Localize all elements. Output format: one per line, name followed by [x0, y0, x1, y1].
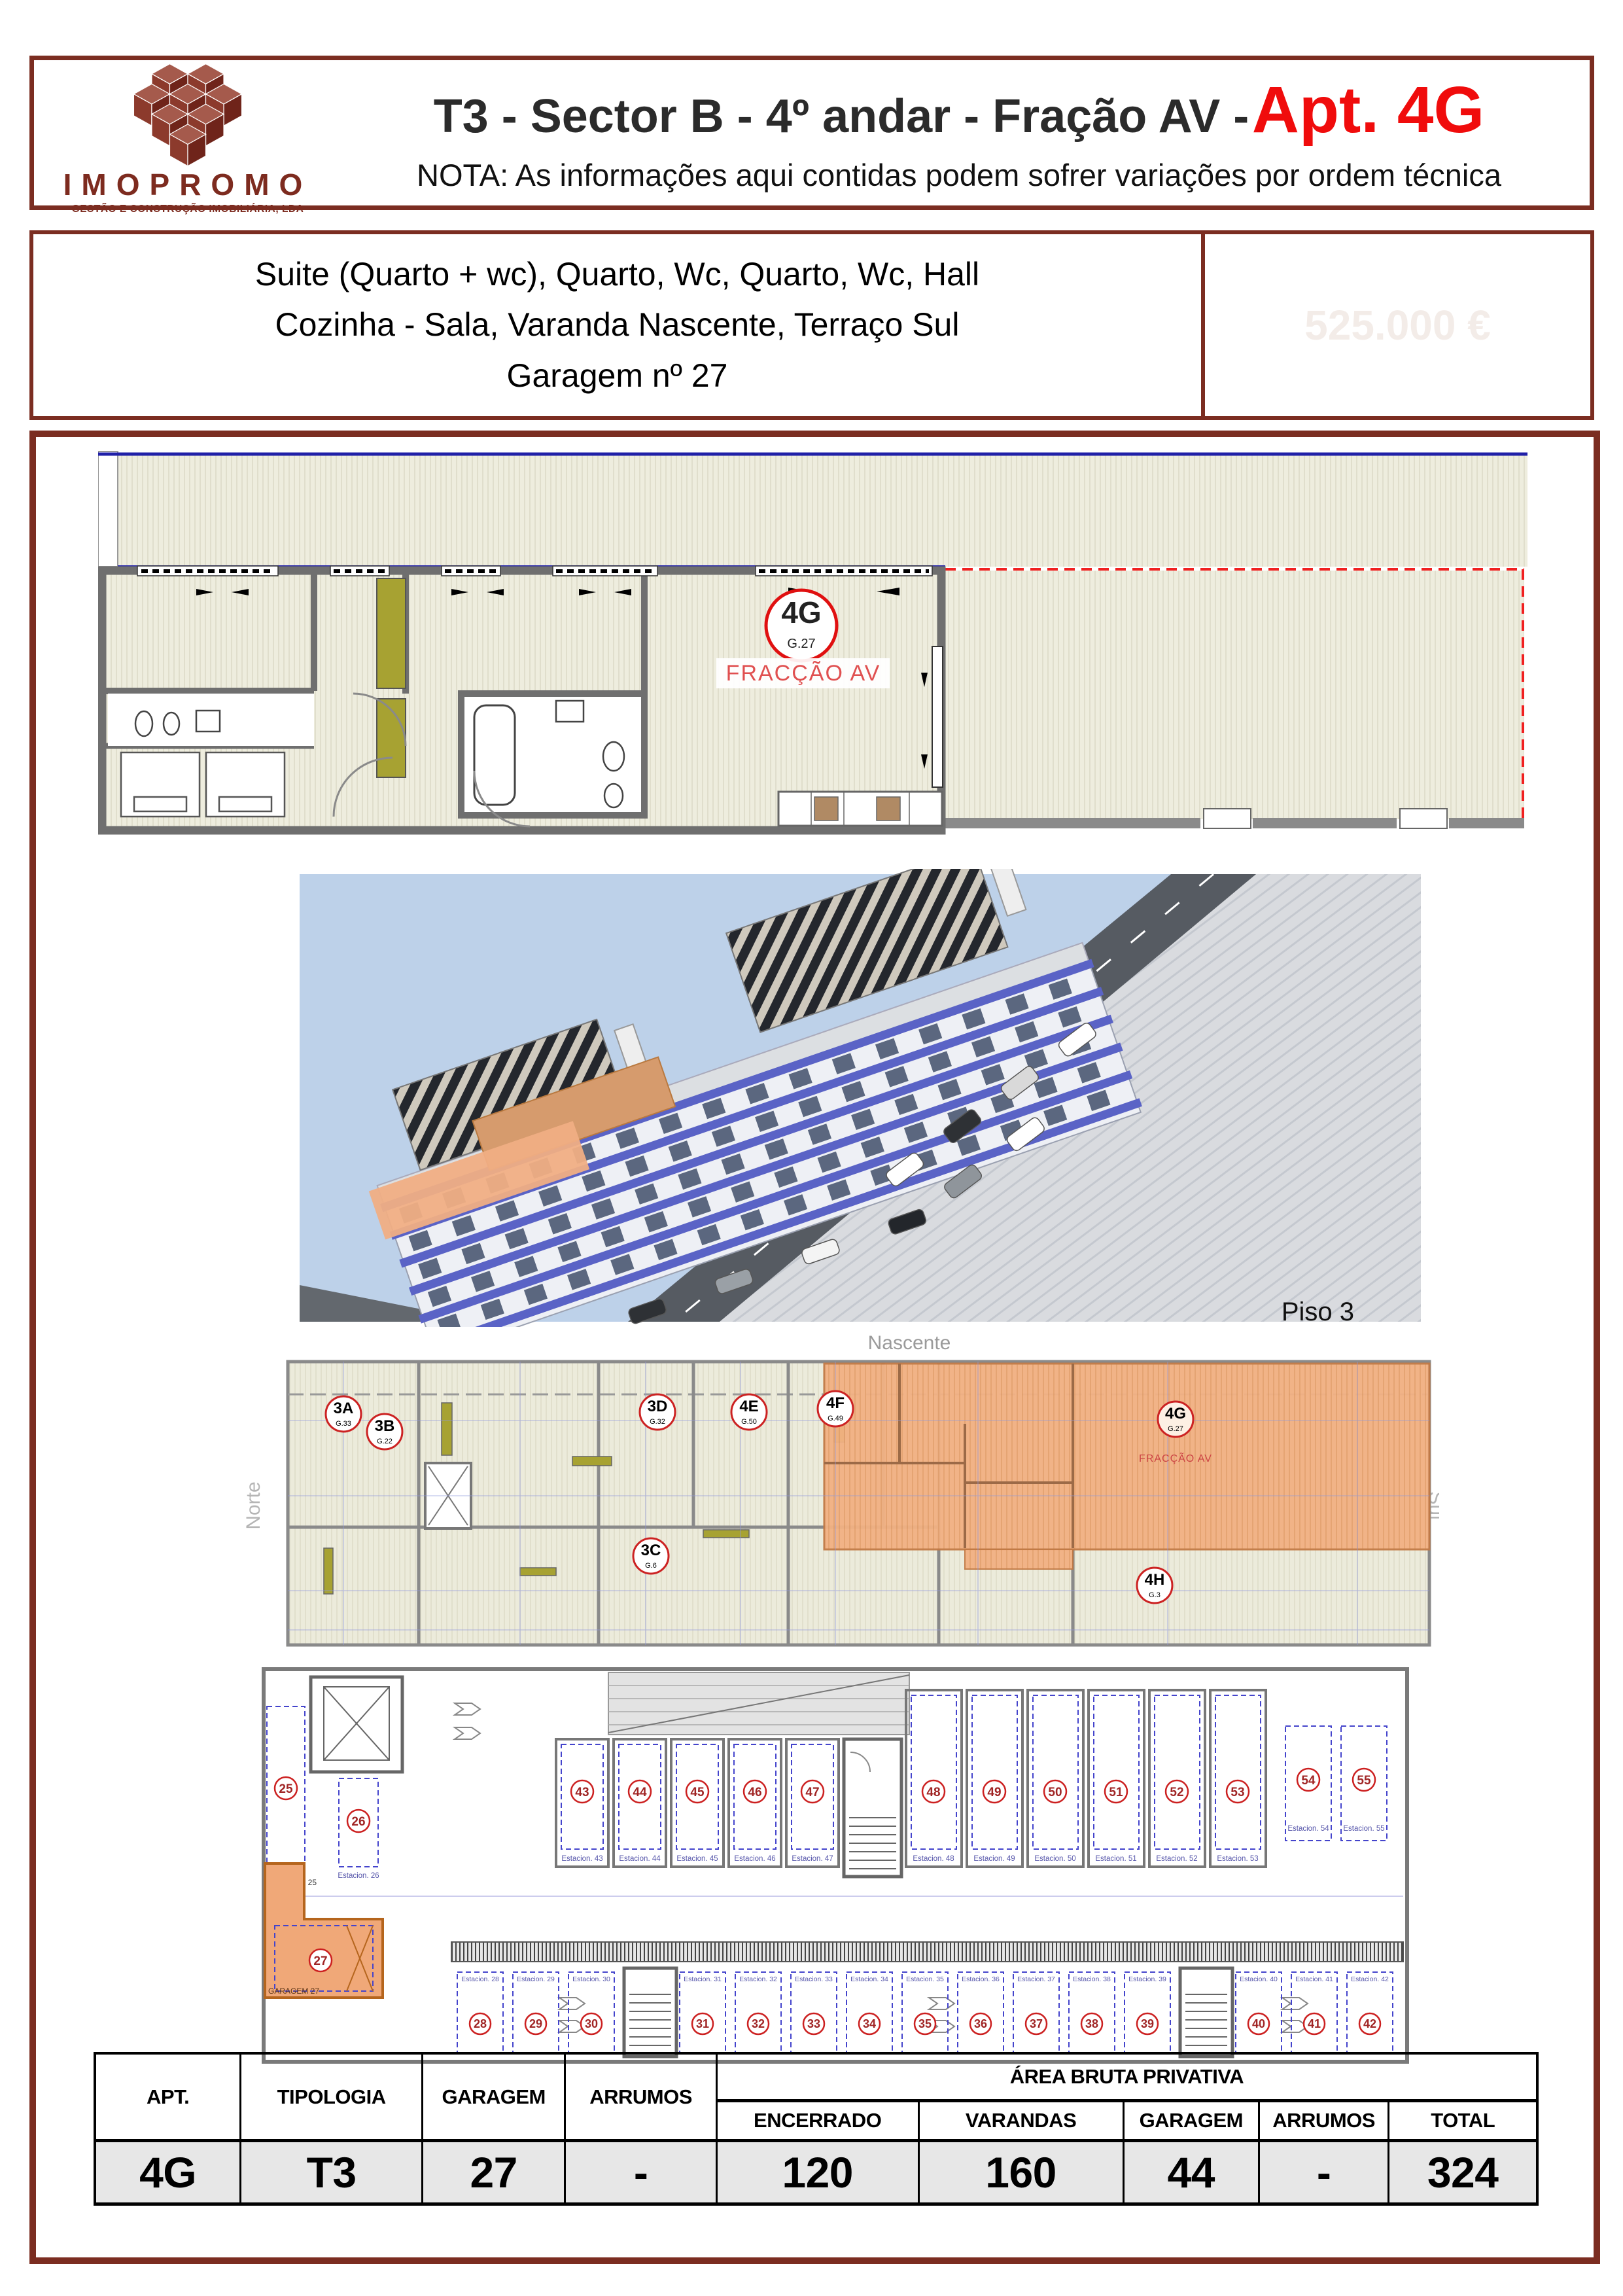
col-header-varandas: VARANDAS [918, 2101, 1123, 2141]
svg-text:Estacion. 39: Estacion. 39 [1128, 1975, 1166, 1983]
svg-text:46: 46 [748, 1786, 761, 1799]
building-3d-render: Piso 3 [288, 869, 1433, 1327]
unit-garage-label: G.27 [787, 637, 815, 651]
company-logo: IMOPROMO GESTÃO E CONSTRUÇÃO IMOBILIÁRIA… [34, 50, 341, 215]
col-header-encerrado: ENCERRADO [716, 2101, 918, 2141]
svg-text:26: 26 [351, 1815, 365, 1829]
title-text: T3 - Sector B - 4º andar - Fração AV - [434, 90, 1249, 143]
balcony-strip [98, 451, 1527, 567]
orientation-nascente: Nascente [868, 1332, 951, 1354]
svg-text:3B: 3B [375, 1417, 395, 1435]
value-tipologia: T3 [241, 2141, 423, 2204]
svg-text:28: 28 [474, 2017, 487, 2030]
page-title: T3 - Sector B - 4º andar - Fração AV - A… [434, 73, 1485, 148]
description-line-3: Garagem nº 27 [507, 351, 728, 402]
svg-text:49: 49 [987, 1786, 1001, 1799]
drawings-box: 4G G.27 FRACÇÃO AV [29, 431, 1600, 2264]
svg-text:Estacion. 43: Estacion. 43 [561, 1855, 602, 1863]
svg-text:4H: 4H [1145, 1571, 1165, 1589]
svg-text:Estacion. 26: Estacion. 26 [338, 1872, 379, 1880]
svg-text:Estacion. 35: Estacion. 35 [906, 1975, 944, 1983]
svg-text:3C: 3C [641, 1542, 661, 1559]
value-arrumos2: - [1259, 2141, 1388, 2204]
col-header-arrumos: ARRUMOS [565, 2053, 717, 2141]
description-row: Suite (Quarto + wc), Quarto, Wc, Quarto,… [29, 230, 1594, 420]
svg-text:G.22: G.22 [377, 1438, 393, 1445]
col-header-arrumos2: ARRUMOS [1259, 2101, 1388, 2141]
svg-text:Estacion. 44: Estacion. 44 [619, 1855, 661, 1863]
property-sheet-page: IMOPROMO GESTÃO E CONSTRUÇÃO IMOBILIÁRIA… [0, 0, 1623, 2296]
stair-core-bottom-1 [624, 1968, 676, 2057]
unit-badge-4f: 4F G.49 [818, 1391, 853, 1426]
description-line-2: Cozinha - Sala, Varanda Nascente, Terraç… [275, 300, 960, 351]
svg-text:Estacion. 55: Estacion. 55 [1343, 1825, 1384, 1833]
svg-text:42: 42 [1363, 2017, 1376, 2030]
svg-text:G.33: G.33 [336, 1420, 351, 1428]
svg-text:31: 31 [696, 2017, 709, 2030]
col-header-total: TOTAL [1389, 2101, 1537, 2141]
svg-text:30: 30 [585, 2017, 598, 2030]
summary-table: APT. TIPOLOGIA GARAGEM ARRUMOS ÁREA BRUT… [94, 2052, 1539, 2206]
fraction-label-small: FRACÇÃO AV [1139, 1451, 1212, 1464]
svg-text:Estacion. 29: Estacion. 29 [517, 1975, 555, 1983]
svg-text:54: 54 [1301, 1774, 1316, 1788]
svg-text:Estacion. 47: Estacion. 47 [792, 1855, 833, 1863]
svg-text:3D: 3D [648, 1398, 668, 1415]
svg-text:Estacion. 45: Estacion. 45 [676, 1855, 718, 1863]
svg-text:Estacion. 46: Estacion. 46 [734, 1855, 775, 1863]
svg-text:Estacion. 54: Estacion. 54 [1287, 1825, 1329, 1833]
rooms-description: Suite (Quarto + wc), Quarto, Wc, Quarto,… [29, 230, 1205, 420]
svg-text:45: 45 [690, 1786, 705, 1799]
unit-badge-3d: 3D G.32 [640, 1394, 675, 1430]
unit-badge-3c: 3C G.6 [633, 1538, 669, 1574]
value-apt: 4G [95, 2141, 241, 2204]
svg-text:Estacion. 52: Estacion. 52 [1156, 1855, 1197, 1863]
svg-text:Estacion. 50: Estacion. 50 [1034, 1855, 1075, 1863]
col-header-tipologia: TIPOLOGIA [241, 2053, 423, 2141]
unit-badge-3b: 3B G.22 [367, 1414, 402, 1449]
svg-text:43: 43 [575, 1786, 589, 1799]
description-line-1: Suite (Quarto + wc), Quarto, Wc, Quarto,… [255, 249, 979, 300]
hatched-wall [451, 1942, 1403, 1962]
col-header-garagem: GARAGEM [423, 2053, 565, 2141]
logo-tagline: GESTÃO E CONSTRUÇÃO IMOBILIÁRIA, LDA [72, 203, 304, 215]
svg-text:52: 52 [1170, 1786, 1183, 1799]
svg-text:Estacion. 36: Estacion. 36 [962, 1975, 1000, 1983]
svg-text:44: 44 [633, 1786, 647, 1799]
value-varandas: 160 [918, 2141, 1123, 2204]
fraction-label: FRACÇÃO AV [726, 661, 881, 686]
ramp [608, 1672, 909, 1735]
svg-text:4G: 4G [1165, 1405, 1186, 1422]
svg-text:35: 35 [918, 2017, 932, 2030]
svg-text:G.6: G.6 [645, 1562, 657, 1570]
svg-text:Estacion. 49: Estacion. 49 [973, 1855, 1015, 1863]
price-box: 525.000 € [1205, 230, 1594, 420]
price-watermark: 525.000 € [1304, 301, 1491, 349]
svg-text:51: 51 [1109, 1786, 1123, 1799]
svg-text:29: 29 [529, 2017, 542, 2030]
svg-text:Estacion. 41: Estacion. 41 [1295, 1975, 1333, 1983]
col-header-apt: APT. [95, 2053, 241, 2141]
svg-text:Estacion. 31: Estacion. 31 [684, 1975, 722, 1983]
svg-text:38: 38 [1085, 2017, 1098, 2030]
svg-text:4F: 4F [826, 1394, 845, 1412]
svg-text:40: 40 [1252, 2017, 1265, 2030]
svg-text:Estacion. 33: Estacion. 33 [795, 1975, 833, 1983]
technical-note: NOTA: As informações aqui contidas podem… [417, 157, 1501, 193]
svg-text:33: 33 [807, 2017, 820, 2030]
svg-text:50: 50 [1048, 1786, 1062, 1799]
wardrobes [377, 578, 406, 777]
svg-text:4E: 4E [739, 1398, 758, 1415]
piso3-floor-plan: Nascente Norte Sul [245, 1332, 1439, 1663]
apartment-floor-plan: 4G G.27 FRACÇÃO AV [98, 450, 1567, 857]
svg-text:Estacion. 48: Estacion. 48 [913, 1855, 954, 1863]
svg-text:41: 41 [1308, 2017, 1321, 2030]
svg-text:27: 27 [313, 1954, 327, 1968]
col-header-garagem2: GARAGEM [1123, 2101, 1259, 2141]
unit-badge-4h: 4H G.3 [1137, 1568, 1172, 1603]
unit-4g-highlight [824, 1364, 1429, 1549]
elevator-block [311, 1677, 402, 1772]
svg-text:47: 47 [805, 1786, 819, 1799]
svg-text:32: 32 [752, 2017, 765, 2030]
svg-text:Estacion. 34: Estacion. 34 [850, 1975, 888, 1983]
value-arrumos: - [565, 2141, 717, 2204]
apartment-code: Apt. 4G [1252, 73, 1485, 147]
svg-text:Estacion. 30: Estacion. 30 [572, 1975, 610, 1983]
unit-badge-4e: 4E G.50 [731, 1394, 767, 1430]
svg-text:55: 55 [1357, 1774, 1371, 1788]
svg-text:G.32: G.32 [650, 1418, 665, 1426]
svg-text:Estacion. 42: Estacion. 42 [1351, 1975, 1389, 1983]
terrace-area [945, 569, 1524, 828]
stair-core-top [844, 1739, 901, 1877]
svg-text:37: 37 [1030, 2017, 1043, 2030]
kitchen-counter [778, 792, 942, 826]
svg-text:Estacion. 40: Estacion. 40 [1240, 1975, 1278, 1983]
svg-text:Estacion. 28: Estacion. 28 [461, 1975, 499, 1983]
stair-core-bottom-2 [1180, 1968, 1232, 2057]
svg-text:Estacion. 53: Estacion. 53 [1217, 1855, 1258, 1863]
logo-cubes-icon [99, 54, 276, 166]
svg-text:3A: 3A [334, 1400, 354, 1417]
svg-text:39: 39 [1141, 2017, 1154, 2030]
orientation-norte: Norte [245, 1481, 264, 1529]
value-total: 324 [1389, 2141, 1537, 2204]
unit-label: 4G [781, 595, 821, 629]
logo-name: IMOPROMO [63, 167, 313, 202]
value-encerrado: 120 [716, 2141, 918, 2204]
unit-badge-3a: 3A G.33 [326, 1396, 361, 1432]
title-block: T3 - Sector B - 4º andar - Fração AV - A… [341, 73, 1590, 193]
garage-plan: 25 GARAGEM 25 26 Estacion. 26 27 GARAGEM… [262, 1667, 1413, 2066]
svg-text:G.50: G.50 [741, 1418, 757, 1426]
value-garagem2: 44 [1123, 2141, 1259, 2204]
svg-text:G.3: G.3 [1149, 1591, 1161, 1599]
svg-text:G.49: G.49 [828, 1415, 843, 1422]
svg-text:25: 25 [279, 1782, 293, 1796]
svg-text:36: 36 [974, 2017, 987, 2030]
svg-text:G.27: G.27 [1168, 1425, 1183, 1433]
value-garagem: 27 [423, 2141, 565, 2204]
svg-text:GARAGEM 27: GARAGEM 27 [268, 1987, 319, 1996]
svg-text:53: 53 [1230, 1786, 1244, 1799]
header: IMOPROMO GESTÃO E CONSTRUÇÃO IMOBILIÁRIA… [29, 56, 1594, 210]
svg-text:Estacion. 32: Estacion. 32 [739, 1975, 777, 1983]
floor-caption: Piso 3 [1282, 1298, 1354, 1326]
svg-text:34: 34 [863, 2017, 876, 2030]
svg-text:Estacion. 38: Estacion. 38 [1073, 1975, 1111, 1983]
svg-text:48: 48 [926, 1786, 940, 1799]
col-group-area-bruta: ÁREA BRUTA PRIVATIVA [716, 2053, 1537, 2101]
table-row: 4G T3 27 - 120 160 44 - 324 [95, 2141, 1537, 2204]
svg-text:Estacion. 51: Estacion. 51 [1095, 1855, 1136, 1863]
svg-text:Estacion. 37: Estacion. 37 [1017, 1975, 1055, 1983]
